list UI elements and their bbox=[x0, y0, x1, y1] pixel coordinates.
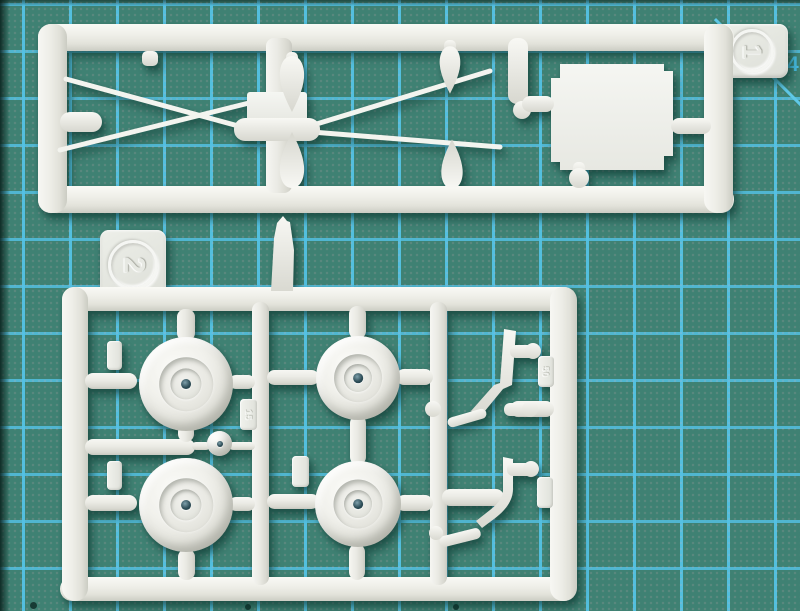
sprue-1-parts bbox=[30, 14, 800, 229]
skid-foot bbox=[438, 527, 481, 548]
sprue-1: 1 bbox=[30, 14, 800, 229]
plate-left-stub bbox=[508, 38, 528, 104]
photo-of-model-sprues: 4 1 bbox=[0, 0, 800, 611]
sprue-2: 2 15 50 bbox=[52, 213, 602, 608]
gate-blob bbox=[684, 118, 700, 134]
teardrop-fairing bbox=[441, 139, 462, 188]
plate-left-gate bbox=[522, 96, 554, 112]
step-blade-part bbox=[271, 216, 294, 291]
gate-blob bbox=[429, 526, 443, 540]
rod-right-upper bbox=[310, 71, 490, 126]
landing-skid-strut-lower bbox=[429, 457, 539, 548]
sprue-2-freeform-parts bbox=[52, 213, 602, 608]
gate-blob bbox=[425, 401, 441, 417]
mat-surface-mark bbox=[30, 602, 37, 609]
skid-foot bbox=[446, 408, 487, 429]
rod-right-lower bbox=[312, 132, 500, 147]
left-rail-stub bbox=[60, 112, 102, 132]
teardrop-fairings bbox=[280, 40, 463, 189]
flat-plate-part bbox=[551, 64, 673, 170]
landing-skid-strut-upper bbox=[425, 329, 541, 428]
gate-blob bbox=[569, 168, 589, 188]
gate-blob bbox=[525, 343, 541, 359]
hub-bar bbox=[234, 118, 320, 141]
gate-blob bbox=[523, 461, 539, 477]
gate-blob bbox=[522, 401, 538, 417]
top-rail-nub bbox=[142, 51, 158, 66]
